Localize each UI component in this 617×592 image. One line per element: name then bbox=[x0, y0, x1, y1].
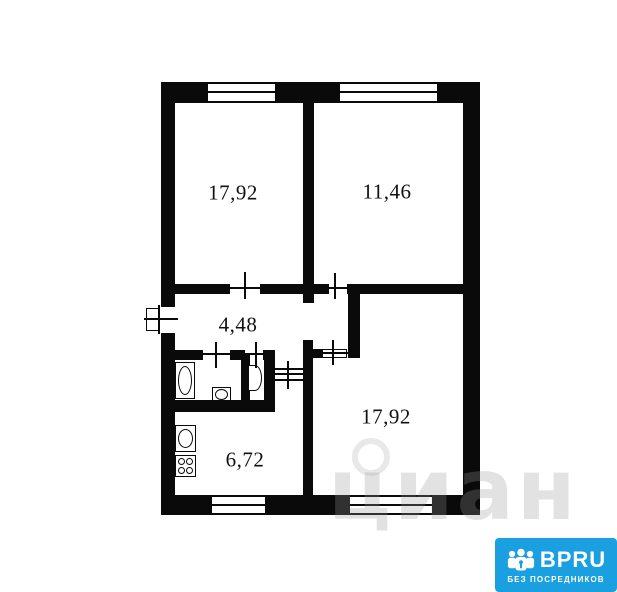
door-room-top-right-mark-v bbox=[334, 273, 336, 299]
window-room-top-left bbox=[208, 82, 275, 103]
bpru-logo-top: BPRU bbox=[506, 548, 606, 572]
wall-kitchen-right bbox=[303, 340, 313, 495]
toilet-bowl bbox=[215, 389, 228, 400]
wall-bath-top-a bbox=[175, 350, 203, 360]
wall-hallway-top-a bbox=[175, 284, 230, 294]
door-wc-mark-h bbox=[242, 353, 266, 355]
door-kitchen-mark-v bbox=[287, 361, 289, 389]
stove-burner bbox=[178, 467, 185, 474]
hallway-area-label: 4,48 bbox=[219, 313, 258, 338]
window-kitchen bbox=[212, 495, 265, 515]
wall-hallway-top-c bbox=[347, 284, 463, 294]
floor-plan-canvas: 17,92 11,46 4,48 6,72 17,92 циан BPRU БЕ… bbox=[0, 0, 617, 592]
stove-burner bbox=[186, 458, 193, 465]
bathtub-basin bbox=[178, 366, 192, 395]
stove-burner bbox=[178, 458, 185, 465]
stove-burner bbox=[186, 467, 193, 474]
wall-vestibule-right bbox=[348, 284, 360, 358]
wall-bath-bottom bbox=[166, 400, 275, 412]
door-room-bottom-right-mark-h bbox=[318, 352, 354, 354]
bpru-logo-brand: BPRU bbox=[540, 549, 606, 571]
kitchen-sink-basin bbox=[178, 429, 193, 448]
wall-hallway-top-b bbox=[260, 284, 329, 294]
door-kitchen-frame-top bbox=[275, 368, 303, 370]
door-kitchen-mark-h bbox=[271, 373, 312, 375]
door-bathroom-mark-v bbox=[215, 342, 217, 368]
kitchen-area-label: 6,72 bbox=[226, 448, 265, 473]
door-kitchen-frame-bottom bbox=[275, 379, 303, 381]
cian-watermark-text: циан bbox=[328, 448, 579, 533]
room-top-right-area-label: 11,46 bbox=[363, 180, 412, 205]
door-room-top-right-mark-h bbox=[324, 287, 351, 289]
window-room-top-right bbox=[340, 82, 437, 103]
room-bottom-right-area-label: 17,92 bbox=[361, 405, 411, 430]
entrance-mark-h bbox=[144, 318, 178, 320]
door-room-top-left-mark-v bbox=[244, 272, 246, 299]
wall-outer-left bbox=[161, 82, 175, 515]
entrance-mark-v bbox=[158, 305, 160, 334]
room-top-left-area-label: 17,92 bbox=[208, 181, 258, 206]
entrance-opening bbox=[161, 307, 175, 333]
bpru-logo[interactable]: BPRU БЕЗ ПОСРЕДНИКОВ bbox=[495, 538, 617, 592]
bpru-logo-tagline: БЕЗ ПОСРЕДНИКОВ bbox=[507, 575, 604, 584]
door-wc-mark-v bbox=[255, 342, 257, 368]
people-icon bbox=[506, 548, 536, 572]
wall-bath-right bbox=[264, 350, 275, 402]
wc-sink bbox=[248, 365, 262, 391]
wall-divider-top-rooms bbox=[303, 103, 314, 303]
